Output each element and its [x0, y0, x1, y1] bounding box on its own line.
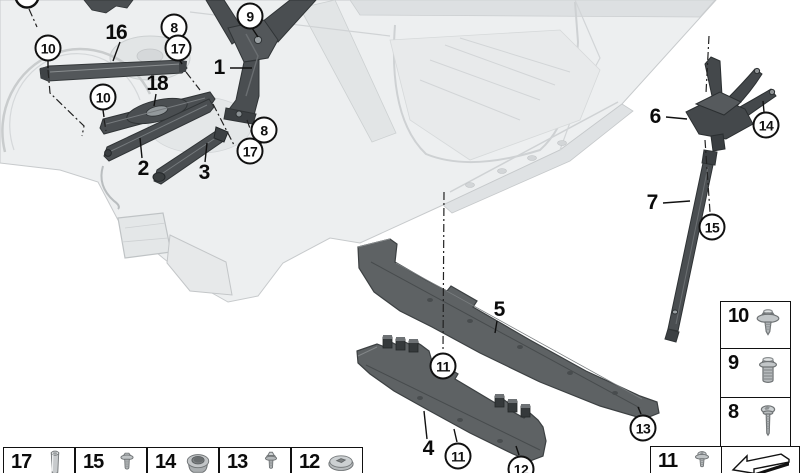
part-label-1[interactable]: 1: [214, 56, 225, 80]
legend-item-12[interactable]: 12: [291, 447, 363, 473]
callout-11[interactable]: 11: [445, 443, 472, 470]
torx-flange-screw-icon: [687, 448, 717, 473]
legend-item-17[interactable]: 17: [3, 447, 75, 473]
legend-item-14[interactable]: 14: [147, 447, 219, 473]
parts-diagram: 16 1 18 2 3 5 4 6 7 10 8 17 9 10 8 17 14…: [0, 0, 800, 473]
diagram-canvas: [0, 0, 800, 473]
part-label-4[interactable]: 4: [423, 437, 434, 461]
part-label-16[interactable]: 16: [105, 21, 126, 45]
legend-item-13[interactable]: 13: [219, 447, 291, 473]
legend-number: 17: [11, 451, 31, 473]
rivet-nut-icon: [182, 449, 214, 473]
legend-number: 8: [728, 401, 738, 424]
legend-number: 15: [83, 451, 103, 473]
hex-screw-icon: [256, 449, 286, 473]
flange-screw-icon: [750, 303, 786, 352]
legend-item-11[interactable]: 11: [650, 446, 722, 473]
part-label-7[interactable]: 7: [647, 191, 658, 215]
direction-arrow-icon: [725, 448, 797, 473]
legend-number: 14: [155, 451, 175, 473]
callout-17[interactable]: 17: [237, 138, 264, 165]
callout-17[interactable]: 17: [165, 35, 192, 62]
pan-head-screw-icon: [750, 399, 786, 450]
callout-11[interactable]: 11: [430, 353, 457, 380]
cap-nut-icon: [324, 449, 358, 473]
part-label-18[interactable]: 18: [146, 72, 167, 96]
direction-indicator-box: [721, 446, 800, 473]
legend-number: 10: [728, 305, 748, 328]
callout-10[interactable]: 10: [35, 35, 62, 62]
legend-item-9[interactable]: 9: [720, 348, 791, 398]
callout-9[interactable]: 9: [237, 3, 264, 30]
callout-15[interactable]: 15: [699, 214, 726, 241]
part-label-2[interactable]: 2: [138, 157, 149, 181]
flange-bolt-icon: [112, 449, 142, 473]
part-label-5[interactable]: 5: [494, 298, 505, 322]
part-7-tension-strut: [665, 150, 717, 342]
legend-item-8[interactable]: 8: [720, 397, 791, 447]
part-label-6[interactable]: 6: [650, 105, 661, 129]
callout-10[interactable]: 10: [90, 84, 117, 111]
legend-number: 12: [299, 451, 319, 473]
legend-number: 11: [658, 450, 677, 473]
hex-bolt-icon: [750, 350, 786, 401]
part-label-3[interactable]: 3: [199, 161, 210, 185]
legend-item-15[interactable]: 15: [75, 447, 147, 473]
legend-number: 13: [227, 451, 247, 473]
callout-13[interactable]: 13: [630, 415, 657, 442]
legend-number: 9: [728, 352, 738, 375]
spacer-sleeve-icon: [40, 449, 70, 473]
legend-item-10[interactable]: 10: [720, 301, 791, 349]
callout-14[interactable]: 14: [753, 112, 780, 139]
